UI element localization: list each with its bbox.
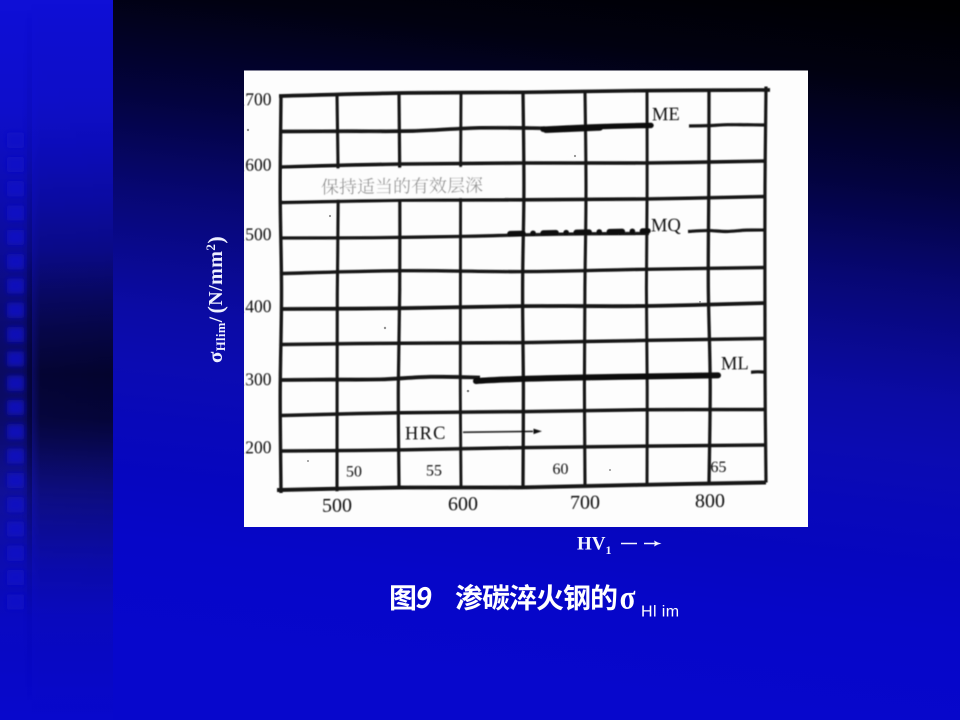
svg-text:700: 700: [570, 492, 600, 514]
svg-text:MQ: MQ: [651, 216, 681, 236]
svg-text:Hl im: Hl im: [641, 604, 679, 621]
svg-text:50: 50: [346, 464, 362, 481]
svg-text:60: 60: [553, 461, 569, 478]
svg-text:ML: ML: [721, 354, 749, 374]
svg-text:800: 800: [695, 490, 725, 512]
svg-text:65: 65: [711, 459, 727, 476]
svg-text:600: 600: [448, 493, 478, 515]
svg-text:ME: ME: [652, 105, 680, 125]
svg-text:500: 500: [322, 495, 352, 517]
svg-text:HRC: HRC: [405, 424, 447, 445]
svg-text:55: 55: [426, 463, 442, 480]
